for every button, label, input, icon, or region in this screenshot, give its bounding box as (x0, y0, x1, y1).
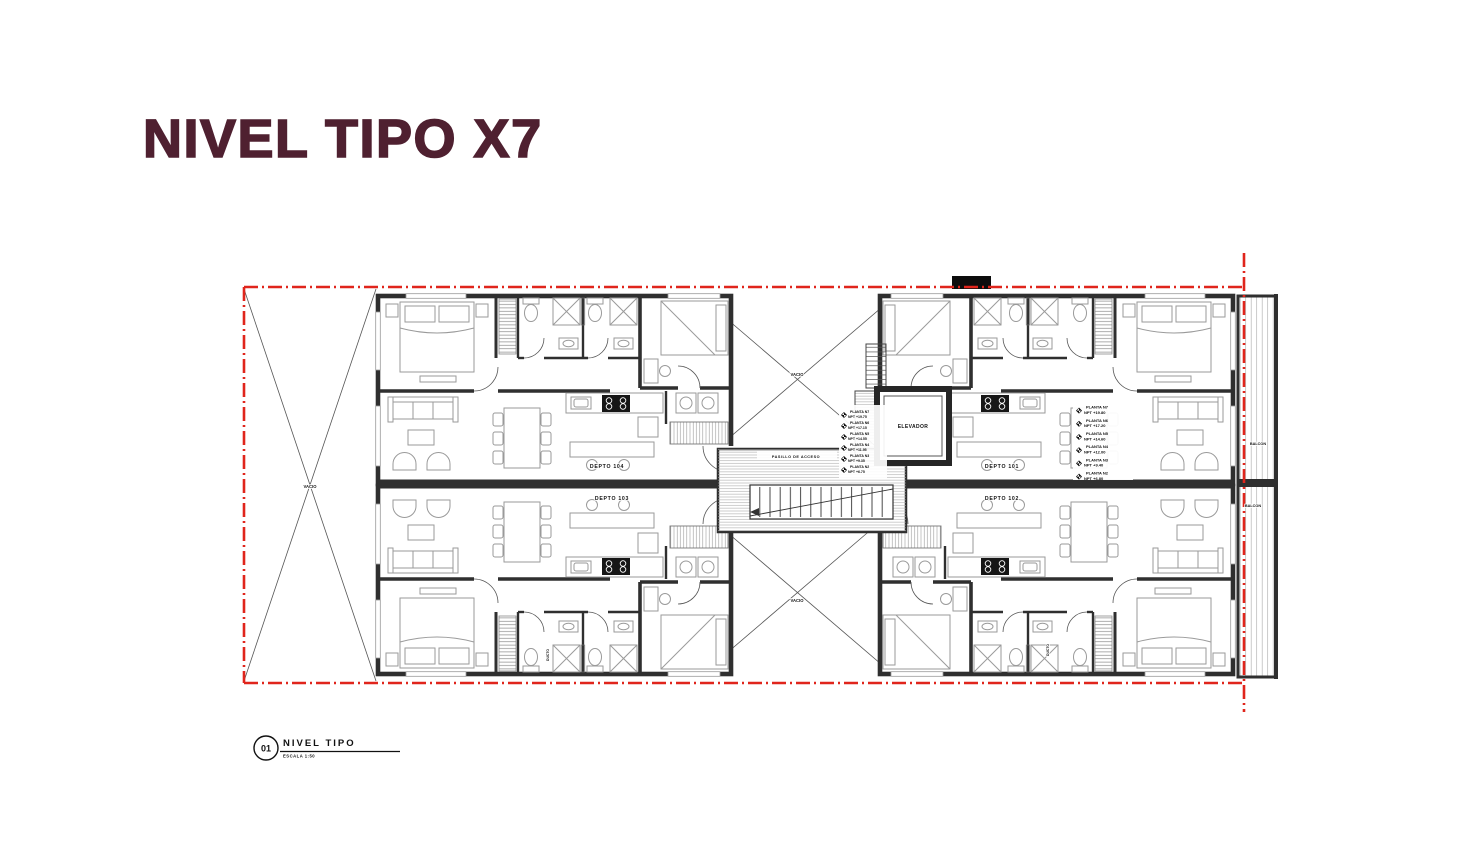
level-right-planta: PLANTA N7 (1086, 405, 1109, 410)
elevator-label: ELEVADOR (898, 424, 929, 430)
level-left-npt: NPT +6.75 (848, 470, 865, 474)
party-wall-right-block (880, 480, 1233, 489)
apartment-label-103: DEPTO 103 (595, 496, 629, 502)
party-wall-left-block (378, 480, 731, 489)
level-right-planta: PLANTA N4 (1086, 444, 1109, 449)
level-left-npt: NPT +14.55 (848, 437, 867, 441)
apartment-label-101: DEPTO 101 (985, 464, 1019, 470)
void-label-top-center: VACIO (791, 372, 805, 377)
level-annotations-left: PLANTA N7 NPT +19.75 PLANTA N6 NPT +17.1… (839, 405, 887, 479)
apartment-label-102: DEPTO 102 (985, 496, 1019, 502)
apartment-depto-102 (876, 486, 1235, 676)
view-number: 01 (261, 744, 271, 754)
level-left-planta: PLANTA N2 (850, 465, 869, 469)
balcony-label-upper: BALCON (1250, 442, 1266, 446)
level-left-npt: NPT +11.95 (848, 448, 867, 452)
view-name: NIVEL TIPO (283, 738, 356, 749)
apartment-depto-104 (376, 294, 735, 484)
level-right-planta: PLANTA N3 (1086, 457, 1109, 462)
level-right-npt: NPT +6.80 (1084, 476, 1104, 481)
level-left-planta: PLANTA N3 (850, 454, 869, 458)
apartment-depto-103 (376, 486, 735, 676)
duct-label-right: DUCTO (1046, 644, 1050, 656)
void-label-bottom-center: VACIO (791, 598, 805, 603)
duct-label-left: DUCTO (546, 649, 550, 661)
level-left-planta: PLANTA N5 (850, 432, 869, 436)
level-right-planta: PLANTA N6 (1086, 418, 1109, 423)
level-right-npt: NPT +17.20 (1084, 423, 1106, 428)
balcony-label-lower: BALCON (1245, 504, 1261, 508)
level-left-planta: PLANTA N4 (850, 443, 869, 447)
level-annotations-right: PLANTA N7 NPT +19.80 PLANTA N6 NPT +17.2… (1073, 399, 1133, 481)
void-label-left: VACIO (304, 484, 318, 489)
level-left-npt: NPT +19.75 (848, 415, 867, 419)
floor-plan-svg: DEPTO 104 DEPTO 103 DEPTO 101 DEPTO 102 … (0, 0, 1478, 856)
view-title-tag: 01 NIVEL TIPO ESCALA 1:50 (254, 736, 400, 760)
level-right-npt: NPT +12.00 (1084, 450, 1106, 455)
level-right-npt: NPT +14.60 (1084, 436, 1106, 441)
stair-flight-strip (866, 344, 886, 388)
corridor-label: PASILLO DE ACCESO (772, 455, 820, 459)
level-right-planta: PLANTA N5 (1086, 431, 1109, 436)
level-right-npt: NPT +9.40 (1084, 463, 1104, 468)
level-left-planta: PLANTA N6 (850, 421, 869, 425)
apartment-label-104: DEPTO 104 (590, 464, 624, 470)
level-left-planta: PLANTA N7 (850, 410, 869, 414)
level-left-npt: NPT +17.15 (848, 426, 867, 430)
level-right-planta: PLANTA N2 (1086, 471, 1109, 476)
level-right-npt: NPT +19.80 (1084, 410, 1106, 415)
level-left-npt: NPT +9.35 (848, 459, 865, 463)
view-scale: ESCALA 1:50 (283, 754, 315, 759)
